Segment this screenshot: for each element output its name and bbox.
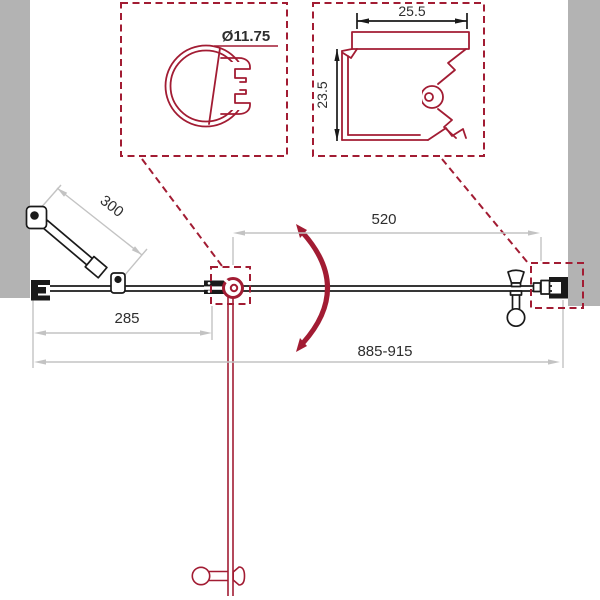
door-latch-fitting bbox=[534, 281, 550, 295]
profile-width-dim: 25.5 bbox=[357, 3, 467, 29]
overall-width-label: 885-915 bbox=[357, 343, 412, 360]
support-bar-length-label: 300 bbox=[97, 192, 127, 221]
diameter-label: Ø11.75 bbox=[222, 28, 270, 45]
door-width-label: 520 bbox=[371, 211, 396, 228]
clamp-screw-icon bbox=[114, 276, 121, 283]
right-wall bbox=[568, 0, 600, 306]
bracket-screw-icon bbox=[30, 211, 39, 220]
door-swing-arc bbox=[296, 224, 328, 352]
door-open-position bbox=[192, 297, 244, 596]
leader-line-wall bbox=[442, 159, 528, 263]
fixed-panel-dim: 285 bbox=[34, 310, 212, 336]
profile-width-label: 25.5 bbox=[398, 3, 425, 19]
door-handle-open bbox=[192, 567, 244, 585]
profile-height-dim: 23.5 bbox=[314, 49, 340, 141]
left-wall-profile bbox=[31, 280, 50, 301]
shower-door-plan-drawing: Ø11.75 25.5 23.5 bbox=[0, 0, 600, 600]
door-handle-closed bbox=[507, 270, 524, 326]
pivot-detail-box bbox=[121, 3, 287, 156]
right-wall-profile bbox=[549, 277, 568, 299]
pivot-profile-drawing: Ø11.75 bbox=[166, 28, 279, 127]
overall-width-dim: 885-915 bbox=[34, 343, 560, 365]
left-wall bbox=[0, 0, 30, 298]
fixed-panel-width-label: 285 bbox=[114, 310, 139, 327]
profile-height-label: 23.5 bbox=[314, 81, 330, 108]
leader-line-pivot bbox=[142, 159, 222, 266]
door-hinge bbox=[204, 278, 243, 298]
technical-drawing-canvas: Ø11.75 25.5 23.5 bbox=[0, 0, 600, 600]
wall-profile-drawing: 25.5 23.5 bbox=[314, 3, 469, 141]
